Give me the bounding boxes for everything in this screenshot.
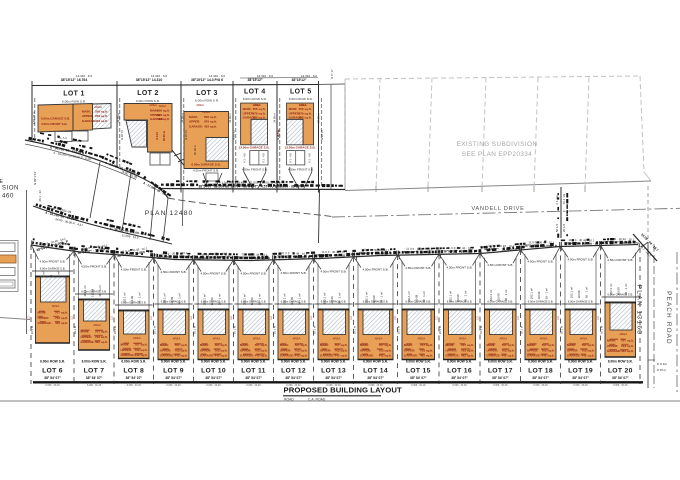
svg-text:38° 54′ 07″: 38° 54′ 07″ [44,376,61,380]
svg-text:9.1 m: 9.1 m [277,129,281,136]
svg-text:6.00m ROW S.R.: 6.00m ROW S.R. [488,359,513,363]
svg-text:9 1 - 4.9: 9 1 - 4.9 [262,153,266,163]
svg-text:556 sq.ft.: 556 sq.ft. [204,115,217,119]
svg-text:38° 54′ 07″: 38° 54′ 07″ [410,376,427,380]
svg-text:SION: SION [2,185,19,192]
svg-text:6.00m ROW S.R.: 6.00m ROW S.R. [289,97,313,101]
svg-text:13.00m GARAGE S.B.: 13.00m GARAGE S.B. [239,146,270,150]
svg-text:14.310 · 6.0: 14.310 · 6.0 [151,74,167,78]
svg-text:460: 460 [2,193,14,200]
svg-text:38° 54′ 07″: 38° 54′ 07″ [532,376,549,380]
svg-text:38° 54′ 07″: 38° 54′ 07″ [125,376,142,380]
svg-text:6.00m GARAGE S.B.: 6.00m GARAGE S.B. [568,300,594,304]
svg-text:6.00m GARAGE S.B.: 6.00m GARAGE S.B. [321,300,347,304]
svg-text:AREA: AREA [149,103,157,107]
svg-text:4.50m FRONT S.B.: 4.50m FRONT S.B. [288,167,314,171]
svg-text:38 · 1 m²: 38 · 1 m² [258,294,262,306]
svg-text:4.50m FRONT S.B.: 4.50m FRONT S.B. [568,257,594,261]
svg-text:4.50m FRONT S.B.: 4.50m FRONT S.B. [201,272,227,276]
svg-text:4.50m FRONT S.B.: 4.50m FRONT S.B. [447,265,473,269]
svg-text:6.00m GARAGE S.B.: 6.00m GARAGE S.B. [161,300,187,304]
svg-text:· 6.096 · 30.48 ·: · 6.096 · 30.48 · [125,384,142,387]
svg-text:38° 54′ 07″: 38° 54′ 07″ [572,376,589,380]
svg-text:46.1 · 43: 46.1 · 43 [38,190,42,202]
svg-text:38°15′12″: 38°15′12″ [247,78,262,82]
svg-text:9.144: 9.144 [155,132,159,140]
svg-text:6.00m GARAGE S.B.: 6.00m GARAGE S.B. [201,300,227,304]
svg-text:6.00m GARAGE S.B.: 6.00m GARAGE S.B. [241,300,267,304]
svg-text:AREA: AREA [375,336,383,340]
svg-text:AREA: AREA [52,304,60,308]
svg-text:34.09 m: 34.09 m [117,112,121,122]
svg-text:6.00m GARAGE S.B.: 6.00m GARAGE S.B. [447,300,473,304]
svg-text:AREA: AREA [159,104,167,108]
svg-text:6.00m GARAGE S.B.: 6.00m GARAGE S.B. [191,163,220,167]
svg-text:38° 54′ 07″: 38° 54′ 07″ [245,376,262,380]
svg-text:N 89°1′43″: N 89°1′43″ [33,171,37,185]
svg-text:6.00m ROW S.R.: 6.00m ROW S.R. [161,359,186,363]
svg-text:38° 54′ 07″: 38° 54′ 07″ [285,376,302,380]
svg-text:LOT 20: LOT 20 [608,367,633,374]
svg-text:LOT 10: LOT 10 [201,367,226,374]
svg-text:6.00m GARAGE S.B.: 6.00m GARAGE S.B. [81,290,107,294]
svg-text:6.00m ROW S.R.: 6.00m ROW S.R. [241,359,266,363]
svg-text:AREA: AREA [580,336,588,340]
svg-text:MAIN:: MAIN: [189,115,198,119]
svg-text:AREA: AREA [619,332,627,336]
svg-text:6.00m ROW S.R.: 6.00m ROW S.R. [62,100,86,104]
svg-text:979 sq.ft.: 979 sq.ft. [204,120,217,124]
svg-text:6.00m GARAGE S.B.: 6.00m GARAGE S.B. [281,300,307,304]
svg-text:AREA: AREA [540,336,548,340]
svg-text:16.1 m: 16.1 m [113,325,117,334]
svg-text:4.50m FRONT S.B.: 4.50m FRONT S.B. [40,260,66,264]
svg-text:6.00m GARAGE S.B.: 6.00m GARAGE S.B. [363,300,389,304]
svg-text:9 86·19 m: 9 86·19 m [32,111,36,124]
svg-text:38°15′12″ 14.3 P/U 6: 38°15′12″ 14.3 P/U 6 [191,78,223,82]
svg-text:AREA: AREA [299,103,307,107]
svg-text:AREA: AREA [459,336,467,340]
svg-text:102.1 m²: 102.1 m² [203,294,207,305]
svg-text:6.00m ROW S.R.: 6.00m ROW S.R. [195,99,219,103]
svg-text:VANDELL DRIVE: VANDELL DRIVE [471,206,524,212]
svg-text:LOT 12: LOT 12 [281,367,306,374]
svg-text:AREA: AREA [253,103,261,107]
svg-text:6.00m ROW S.R.: 6.00m ROW S.R. [363,359,388,363]
svg-text:UPPER:: UPPER: [82,114,93,118]
svg-text:6.00m ROW S.R.: 6.00m ROW S.R. [608,359,633,363]
svg-text:LOT 3: LOT 3 [196,90,218,97]
svg-text:EXISTING SUBDIVISION: EXISTING SUBDIVISION [457,141,538,148]
svg-text:6.00m GARAGE S.B.: 6.00m GARAGE S.B. [607,293,633,297]
svg-text:LOT 5: LOT 5 [290,89,312,96]
svg-text:6.00m GARAGE S.B.: 6.00m GARAGE S.B. [528,300,554,304]
svg-text:AREA: AREA [293,336,301,340]
svg-text:1.2: 1.2 [557,316,560,320]
svg-text:· 6.096 · 30.48 ·: · 6.096 · 30.48 · [205,384,222,387]
svg-text:34.09 m: 34.09 m [317,112,321,122]
svg-text:LOT 18: LOT 18 [528,367,553,374]
svg-text:6.00m ROW S.R.: 6.00m ROW S.R. [121,359,146,363]
svg-text:6.00m GARAGE S.B.: 6.00m GARAGE S.B. [405,300,431,304]
svg-text:556 sq.ft.: 556 sq.ft. [157,108,170,112]
svg-text:AREA: AREA [133,336,141,340]
svg-text:16.1 1/2: 16.1 1/2 [562,193,566,204]
svg-text:16.1 m: 16.1 m [233,325,237,334]
svg-text:1.2: 1.2 [435,316,438,320]
svg-text:LOT 14: LOT 14 [363,367,388,374]
svg-text:6.00m GARAGE S.B.: 6.00m GARAGE S.B. [487,300,513,304]
svg-text:38 · 1 m²: 38 · 1 m² [504,290,508,302]
svg-text:14.310 · 6.0: 14.310 · 6.0 [257,74,273,78]
svg-text:· 6.096 · 30.48 ·: · 6.096 · 30.48 · [612,384,629,387]
svg-text:AREA: AREA [196,103,204,107]
svg-text:AREA: AREA [417,336,425,340]
svg-text:6.00m ROW S.R.: 6.00m ROW S.R. [82,359,107,363]
svg-text:16.1 m: 16.1 m [397,325,401,334]
svg-text:MAIN:: MAIN: [82,110,91,114]
svg-text:433 sq.ft.: 433 sq.ft. [204,124,217,128]
svg-text:6 1 1/2: 6 1 1/2 [555,195,559,205]
svg-text:110.09: 110.09 [577,290,581,299]
svg-text:16.1 m: 16.1 m [520,325,524,334]
svg-text:1.2: 1.2 [190,316,193,320]
svg-text:6.00m ROW S.R.: 6.00m ROW S.R. [447,359,472,363]
svg-text:LOT 17: LOT 17 [488,367,513,374]
svg-text:LOT 13: LOT 13 [321,367,346,374]
svg-text:· 11.0·9 · 30.48 · 16.1: · 11.0·9 · 30.48 · 16.1 [567,238,595,242]
svg-text:1.2: 1.2 [350,316,353,320]
svg-text:102.1 m²: 102.1 m² [489,290,493,301]
svg-text:LOT 15: LOT 15 [406,367,431,374]
svg-text:433 sq.ft.: 433 sq.ft. [299,116,312,120]
svg-text:4.50m FRONT S.B.: 4.50m FRONT S.B. [528,260,554,264]
svg-text:GARAGE:: GARAGE: [189,124,203,128]
svg-text:LOT 9: LOT 9 [163,367,184,374]
svg-text:9 1 - 4.9: 9 1 - 4.9 [289,153,293,163]
svg-text:433 sq.ft.: 433 sq.ft. [95,119,108,123]
svg-text:4.50m FRONT S.B.: 4.50m FRONT S.B. [241,272,267,276]
svg-text:4.50m FRONT S.B.: 4.50m FRONT S.B. [121,268,147,272]
svg-text:AREA: AREA [94,105,102,109]
svg-text:PROPOSED BUILDING LAYOUT: PROPOSED BUILDING LAYOUT [284,386,402,395]
svg-text:· 6.096 · 30.48 ·: · 6.096 · 30.48 · [451,384,468,387]
svg-text:LOT 16: LOT 16 [447,367,472,374]
svg-text:UPPER:: UPPER: [189,120,200,124]
svg-text:556 sq.ft.: 556 sq.ft. [95,110,108,114]
svg-text:· 6.096 · 30.48 ·: · 6.096 · 30.48 · [44,384,61,387]
svg-text:· 6.096 · 30.48 ·: · 6.096 · 30.48 · [492,384,509,387]
svg-text:4.50m FRONT S.B.: 4.50m FRONT S.B. [193,169,219,173]
svg-text:110.09: 110.09 [537,291,541,300]
svg-text:4.50m FRONT S.B.: 4.50m FRONT S.B. [405,266,431,270]
svg-text:16.1 m: 16.1 m [353,325,357,334]
svg-text:4.50m FRONT S.B.: 4.50m FRONT S.B. [363,267,389,271]
svg-text:38.09 m: 38.09 m [162,130,166,141]
svg-text:16.1 m: 16.1 m [438,325,442,334]
svg-text:LOT 19: LOT 19 [568,367,593,374]
svg-text:1.2: 1.2 [310,316,313,320]
svg-text:16.1 m: 16.1 m [600,325,604,334]
svg-text:LOT 11: LOT 11 [241,367,265,374]
svg-text:9 1 - 4.9: 9 1 - 4.9 [243,153,247,163]
svg-text:34.09 m: 34.09 m [228,112,232,122]
svg-text:1.2: 1.2 [394,316,397,320]
svg-text:LOT 8: LOT 8 [123,367,144,374]
svg-text:LOT 4: LOT 4 [244,89,266,96]
svg-text:PLAN 13163: PLAN 13163 [636,285,643,336]
svg-text:AREA: AREA [253,336,261,340]
svg-text:N 38°15: N 38°15 [320,130,324,140]
svg-text:4.50m FRONT S.B.: 4.50m FRONT S.B. [321,269,347,273]
svg-text:16.1 m: 16.1 m [153,325,157,334]
svg-text:· 6.096 · 30.48 ·: · 6.096 · 30.48 · [572,384,589,387]
svg-text:6.00m ROW S.R.: 6.00m ROW S.R. [201,359,226,363]
svg-text:433 sq.ft.: 433 sq.ft. [157,117,170,121]
svg-text:38° 54′ 07″: 38° 54′ 07″ [86,376,103,380]
svg-text:1.2: 1.2 [110,316,113,320]
svg-text:· 6.096 · 30.48 ·: · 6.096 · 30.48 · [165,384,182,387]
svg-text:50 1/4: 50 1/4 [555,223,559,232]
svg-text:4.50m FRONT S.B.: 4.50m FRONT S.B. [487,263,513,267]
svg-text:14.310 · 6.0: 14.310 · 6.0 [209,74,225,78]
svg-text:38°15′12″ 14.310: 38°15′12″ 14.310 [136,78,163,82]
svg-text:38°15′12″: 38°15′12″ [291,78,306,82]
svg-text:38° 54′ 07″: 38° 54′ 07″ [612,376,629,380]
svg-text:AREA: AREA [333,336,341,340]
svg-text:102.1 m²: 102.1 m² [570,287,574,298]
svg-text:4.50m FRONT S.B.: 4.50m FRONT S.B. [281,271,307,275]
svg-text:1.2: 1.2 [476,316,479,320]
svg-text:38°15′12″ 16.764: 38°15′12″ 16.764 [61,78,88,82]
svg-text:433 sq.ft.: 433 sq.ft. [253,116,266,120]
svg-text:1.2: 1.2 [70,316,73,320]
svg-text:1.2: 1.2 [597,316,600,320]
svg-text:1.2: 1.2 [517,316,520,320]
svg-text:6.00m ROW S.R.: 6.00m ROW S.R. [243,97,267,101]
svg-text:979 sq.ft.: 979 sq.ft. [157,113,170,117]
svg-text:16.1 m: 16.1 m [30,325,34,334]
svg-text:30.69 m: 30.69 m [193,144,197,155]
svg-text:38 · 1 m²: 38 · 1 m² [585,287,589,299]
svg-text:LOT 2: LOT 2 [137,90,159,97]
svg-text:4 - 5.4: 4 - 5.4 [59,136,67,140]
svg-text:9 1 - 4.9: 9 1 - 4.9 [308,153,312,163]
svg-text:SEE PLAN EPP20334: SEE PLAN EPP20334 [462,151,532,158]
svg-text:1.2: 1.2 [230,316,233,320]
svg-text:PEACH ROAD: PEACH ROAD [665,291,672,345]
svg-text:AREA: AREA [213,336,221,340]
svg-text:6.00m GARAGE S.B.: 6.00m GARAGE S.B. [121,301,147,305]
svg-text:6.00m ROW S.R.: 6.00m ROW S.R. [568,359,593,363]
svg-text:38° 54′ 07″: 38° 54′ 07″ [492,376,509,380]
svg-text:A · 17.090−06 · 16.0: A · 17.090−06 · 16.0 [142,181,168,198]
svg-text:1.2: 1.2 [270,316,273,320]
svg-text:34.09 m: 34.09 m [181,112,185,122]
svg-text:38 · 1 m²: 38 · 1 m² [545,288,549,300]
svg-text:· 6.096 · 30.48 ·: · 6.096 · 30.48 · [532,384,549,387]
svg-text:6.00m ROW S.R.: 6.00m ROW S.R. [40,359,65,363]
svg-text:N 38°15: N 38°15 [184,130,188,140]
svg-text:N 38°15: N 38°15 [232,130,236,140]
svg-text:1.2: 1.2 [27,316,30,320]
svg-text:6.00m ROW S.R.: 6.00m ROW S.R. [406,359,431,363]
svg-text:AREA: AREA [203,110,211,114]
svg-text:LOT 6: LOT 6 [42,367,63,374]
svg-text:· 6.096 · 30.48 ·: · 6.096 · 30.48 · [410,384,427,387]
svg-text:38° 54′ 07″: 38° 54′ 07″ [325,376,342,380]
svg-text:14.310 · 6.0: 14.310 · 6.0 [76,74,92,78]
svg-text:4.50m FRONT S.B.: 4.50m FRONT S.B. [607,258,633,262]
svg-text:0.79 m: 0.79 m [657,368,667,372]
svg-text:16.1 m: 16.1 m [560,325,564,334]
svg-text:LOT 1: LOT 1 [63,91,85,98]
svg-text:13.00m GARAGE S.B.: 13.00m GARAGE S.B. [285,146,316,150]
svg-text:· 6.096 · 30.48 ·: · 6.096 · 30.48 · [85,384,102,387]
svg-text:38° 54′ 07″: 38° 54′ 07″ [205,376,222,380]
svg-text:16.1 m: 16.1 m [313,325,317,334]
svg-text:38 · 1 m²: 38 · 1 m² [218,294,222,306]
svg-text:6.00m ROW S.R.: 6.00m ROW S.R. [281,359,306,363]
svg-text:34.09 m: 34.09 m [273,112,277,122]
svg-text:AREA: AREA [93,323,101,327]
svg-text:16.1 m: 16.1 m [273,325,277,334]
svg-text:4.50m FRONT S.B.: 4.50m FRONT S.B. [242,167,268,171]
svg-text:6.00m ROW S.R.: 6.00m ROW S.R. [321,359,346,363]
svg-text:6.00m GARAGE S.B.: 6.00m GARAGE S.B. [40,267,66,271]
svg-text:16.1 m: 16.1 m [73,325,77,334]
svg-text:979 sq.ft.: 979 sq.ft. [95,114,108,118]
svg-text:AREA: AREA [173,336,181,340]
svg-text:38° 54′ 07″: 38° 54′ 07″ [367,376,384,380]
svg-text:AREA: AREA [499,336,507,340]
svg-text:16.1 m: 16.1 m [193,325,197,334]
svg-text:38° 54′ 07″: 38° 54′ 07″ [451,376,468,380]
svg-text:LOT 7: LOT 7 [84,367,105,374]
svg-text:20.1/4: 20.1/4 [562,223,566,232]
svg-text:6.00m GARAGE S.B.: 6.00m GARAGE S.B. [41,117,70,121]
svg-text:· 6.096 · 30.48 ·: · 6.096 · 30.48 · [245,384,262,387]
svg-text:38° 54′ 07″: 38° 54′ 07″ [165,376,182,380]
svg-text:16.1 m: 16.1 m [479,325,483,334]
svg-text:102.1 m²: 102.1 m² [530,288,534,299]
svg-text:4.50m FRONT S.B.: 4.50m FRONT S.B. [81,264,107,268]
svg-text:4.50m FRONT S.B.: 4.50m FRONT S.B. [41,122,68,126]
svg-text:6' 0 1/2: 6' 0 1/2 [657,362,667,366]
svg-text:4.50m FRONT S.B.: 4.50m FRONT S.B. [161,270,187,274]
svg-text:N 38°15: N 38°15 [120,130,124,140]
svg-text:1.2: 1.2 [150,316,153,320]
svg-text:6.00m ROW S.R.: 6.00m ROW S.R. [528,359,553,363]
svg-text:N 0° 17: N 0° 17 [330,69,334,79]
